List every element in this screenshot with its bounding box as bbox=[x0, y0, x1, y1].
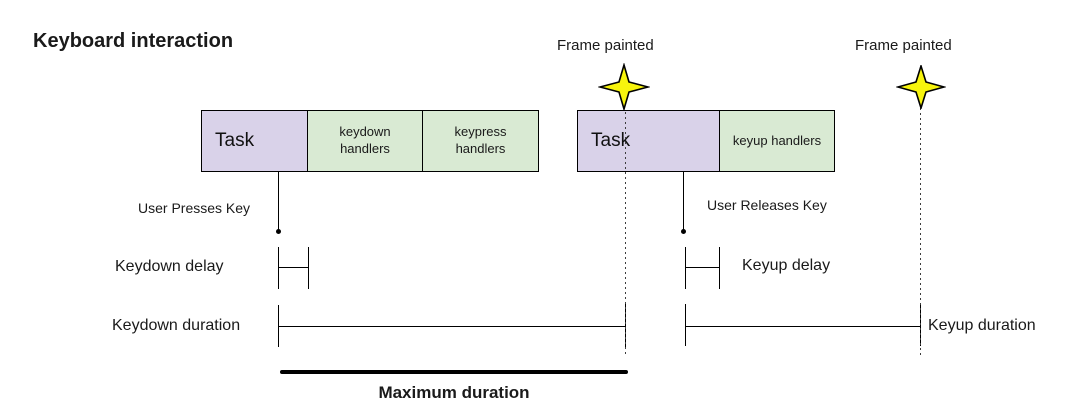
key-release-marker-line bbox=[683, 172, 684, 230]
keyup-task-label: Task bbox=[578, 130, 630, 152]
keyup-delay-span-line bbox=[685, 267, 720, 268]
keydown-task-label: Task bbox=[202, 130, 254, 152]
keydown-delay-label: Keydown delay bbox=[115, 258, 224, 276]
frame-painted-dotted-line-2 bbox=[920, 108, 921, 358]
frame-painted-dotted-line-1 bbox=[625, 112, 626, 356]
keyup-delay-end-tick bbox=[719, 247, 720, 289]
frame-painted-star-icon bbox=[896, 65, 946, 109]
keypress-handlers-box: keypress handlers bbox=[422, 110, 539, 172]
user-releases-key-label: User Releases Key bbox=[707, 197, 827, 213]
user-presses-key-label: User Presses Key bbox=[138, 200, 250, 216]
keydown-delay-start-tick bbox=[278, 247, 279, 289]
keypress-handlers-label: keypress handlers bbox=[444, 124, 518, 158]
keydown-duration-span-line bbox=[278, 326, 626, 327]
maximum-duration-line bbox=[280, 370, 628, 374]
key-release-dot bbox=[681, 229, 686, 234]
keyup-task-box: Task bbox=[577, 110, 720, 172]
key-press-dot bbox=[276, 229, 281, 234]
keyup-handlers-label: keyup handlers bbox=[733, 133, 821, 150]
key-press-marker-line bbox=[278, 172, 279, 230]
maximum-duration-label: Maximum duration bbox=[280, 383, 628, 403]
frame-painted-label-2: Frame painted bbox=[855, 37, 952, 54]
keyup-duration-span-line bbox=[685, 326, 921, 327]
keyup-handlers-box: keyup handlers bbox=[719, 110, 835, 172]
keydown-task-box: Task bbox=[201, 110, 308, 172]
keyup-delay-label: Keyup delay bbox=[742, 257, 830, 275]
keyup-duration-label: Keyup duration bbox=[928, 317, 1036, 335]
keydown-handlers-box: keydown handlers bbox=[307, 110, 423, 172]
keydown-duration-label: Keydown duration bbox=[112, 317, 240, 335]
keyup-duration-start-tick bbox=[685, 304, 686, 346]
keydown-delay-end-tick bbox=[308, 247, 309, 289]
page-title: Keyboard interaction bbox=[33, 30, 233, 53]
keyboard-interaction-diagram: Keyboard interaction Frame painted Frame… bbox=[0, 0, 1080, 420]
frame-painted-label-1: Frame painted bbox=[557, 37, 654, 54]
frame-painted-star-icon bbox=[598, 63, 650, 111]
keyup-delay-start-tick bbox=[685, 247, 686, 289]
keydown-delay-span-line bbox=[278, 267, 309, 268]
keydown-handlers-label: keydown handlers bbox=[328, 124, 402, 158]
